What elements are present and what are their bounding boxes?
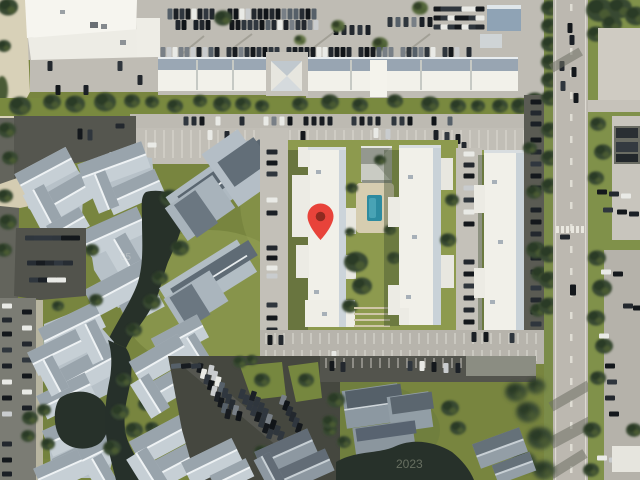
svg-text:05: 05 xyxy=(120,252,132,263)
svg-text:2023: 2023 xyxy=(396,457,423,471)
